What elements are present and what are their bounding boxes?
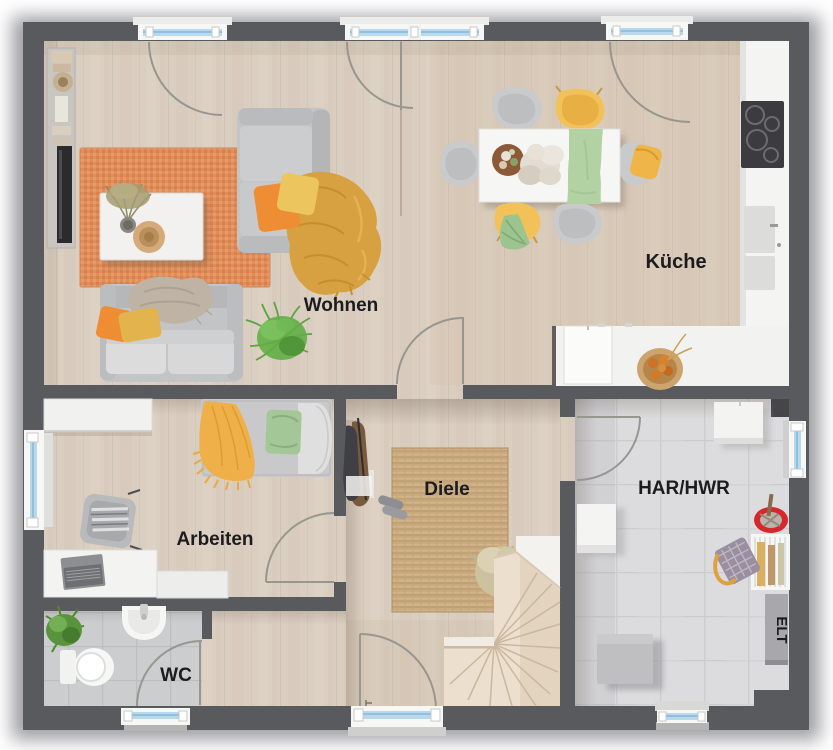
svg-text:ELT: ELT bbox=[773, 616, 790, 643]
svg-text:HAR/HWR: HAR/HWR bbox=[638, 478, 730, 499]
svg-text:Arbeiten: Arbeiten bbox=[176, 529, 253, 550]
svg-text:WC: WC bbox=[160, 665, 192, 686]
svg-text:Diele: Diele bbox=[424, 479, 469, 500]
svg-text:Küche: Küche bbox=[645, 251, 706, 273]
svg-text:Wohnen: Wohnen bbox=[304, 295, 379, 316]
